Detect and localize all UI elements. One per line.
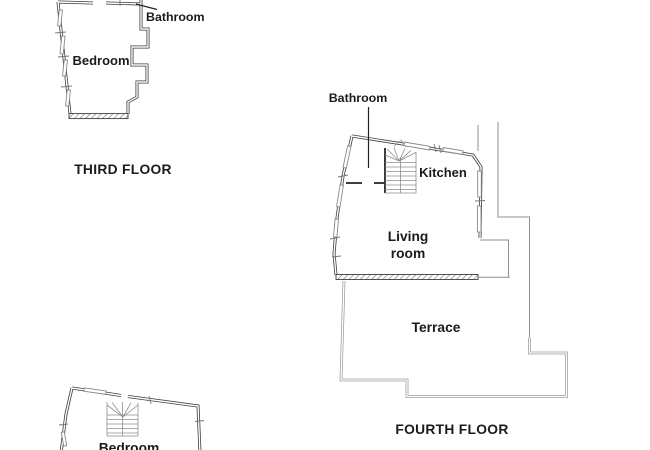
third-floor-plan: Bathroom Bedroom THIRD FLOOR <box>55 0 205 177</box>
floorplan-svg: Bathroom Bedroom THIRD FLOOR <box>0 0 650 450</box>
terrace-parapet <box>341 281 567 397</box>
third-floor-bottom-wall <box>69 114 128 119</box>
staircase <box>107 402 138 436</box>
lower-bedroom-label: Bedroom <box>99 441 160 450</box>
terrace-label: Terrace <box>412 320 461 335</box>
partial-floor-plan: Bedroom <box>59 388 204 450</box>
third-floor-title: THIRD FLOOR <box>74 162 172 177</box>
third-bedroom-label: Bedroom <box>72 53 129 68</box>
living-room-label-line2: room <box>391 246 426 261</box>
third-bathroom-label: Bathroom <box>146 10 205 24</box>
fourth-floor-title: FOURTH FLOOR <box>395 422 508 437</box>
fourth-floor-plan: Bathroom Kitchen Living room Terrace FOU… <box>329 91 567 437</box>
roof-notch <box>480 240 509 277</box>
boundary-line <box>498 122 530 338</box>
kitchen-label: Kitchen <box>419 165 467 180</box>
floorplan-canvas: Bathroom Bedroom THIRD FLOOR <box>0 0 650 450</box>
staircase <box>385 140 416 193</box>
third-bathroom-leader-line <box>136 4 157 10</box>
fourth-bathroom-label: Bathroom <box>329 91 388 105</box>
living-room-bottom-wall <box>336 275 478 280</box>
living-room-label-line1: Living <box>388 229 429 244</box>
